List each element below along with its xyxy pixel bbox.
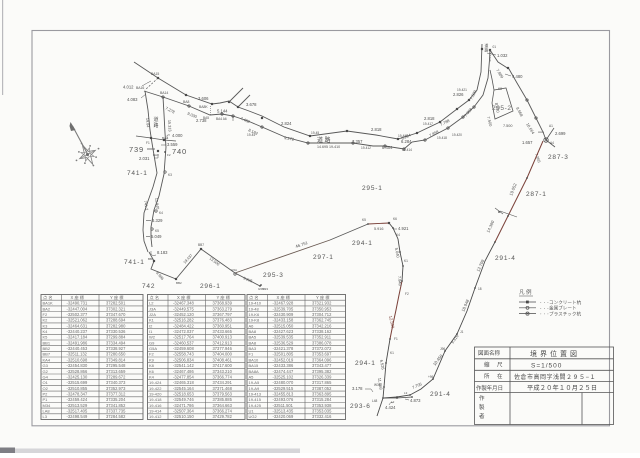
- svg-text:P2: P2: [43, 391, 49, 396]
- svg-text:路: 路: [154, 122, 159, 129]
- svg-text:L2: L2: [149, 301, 154, 306]
- svg-text:K6: K6: [149, 369, 155, 374]
- svg-text:-32467.348: -32467.348: [173, 301, 194, 306]
- svg-text:-32455.813: -32455.813: [273, 391, 294, 396]
- svg-text:37315.284: 37315.284: [312, 397, 332, 402]
- svg-text:K9: K9: [149, 357, 155, 362]
- svg-text:37434.291: 37434.291: [213, 380, 233, 385]
- svg-text:4.873: 4.873: [410, 398, 421, 403]
- svg-text:37371.468: 37371.468: [213, 386, 233, 391]
- svg-text:F2: F2: [405, 292, 409, 296]
- svg-text:37400.913: 37400.913: [213, 335, 233, 340]
- svg-text:37342.216: 37342.216: [312, 323, 332, 328]
- svg-text:製: 製: [479, 403, 485, 411]
- svg-text:4.424: 4.424: [385, 405, 396, 410]
- svg-text:-32425.130: -32425.130: [67, 374, 88, 379]
- svg-text:-32528.866: -32528.866: [67, 369, 88, 374]
- svg-text:37353.697: 37353.697: [312, 352, 332, 357]
- svg-text:19-45: 19-45: [311, 131, 319, 135]
- svg-text:-32467.486: -32467.486: [173, 369, 194, 374]
- svg-text:F1: F1: [146, 141, 150, 145]
- svg-text:-32427.623: -32427.623: [273, 329, 294, 334]
- svg-text:3.678: 3.678: [246, 102, 257, 107]
- svg-text:19-44: 19-44: [247, 133, 255, 137]
- svg-text:-32452.019: -32452.019: [273, 357, 294, 362]
- svg-text:19-413: 19-413: [249, 391, 262, 396]
- svg-text:297-1: 297-1: [313, 254, 334, 261]
- svg-text:-32420.069: -32420.069: [273, 414, 294, 419]
- svg-text:境界位置図: 境界位置図: [530, 349, 580, 358]
- svg-text:37338.927: 37338.927: [106, 346, 126, 351]
- svg-text:287-1: 287-1: [526, 191, 547, 198]
- svg-text:19-410: 19-410: [249, 301, 262, 306]
- svg-text:19-414: 19-414: [149, 409, 162, 414]
- svg-text:19-418: 19-418: [149, 397, 162, 402]
- svg-text:A5: A5: [249, 374, 255, 379]
- svg-text:BA16: BA16: [136, 86, 144, 90]
- svg-text:37353.938: 37353.938: [312, 403, 332, 408]
- svg-text:37335.204: 37335.204: [106, 397, 126, 402]
- svg-text:-32452.120: -32452.120: [173, 312, 194, 317]
- svg-text:37385.885: 37385.885: [213, 397, 233, 402]
- svg-text:37334.494: 37334.494: [106, 340, 126, 345]
- svg-text:-32460.537: -32460.537: [173, 340, 194, 345]
- svg-text:2.818: 2.818: [424, 116, 435, 121]
- svg-text:37363.895: 37363.895: [312, 391, 332, 396]
- svg-text:19-412: 19-412: [149, 414, 162, 419]
- svg-text:37349.814: 37349.814: [106, 357, 126, 362]
- svg-text:-32464.631: -32464.631: [67, 323, 88, 328]
- svg-text:3.178: 3.178: [352, 386, 363, 391]
- svg-text:L48: L48: [372, 399, 378, 403]
- svg-text:BB2: BB2: [43, 346, 51, 351]
- svg-text:37395.382: 37395.382: [312, 369, 332, 374]
- svg-text:-32545.164: -32545.164: [173, 386, 194, 391]
- svg-text:G5A: G5A: [231, 268, 237, 272]
- svg-text:平成２０年１０月２５日: 平成２０年１０月２５日: [527, 384, 597, 392]
- svg-text:BB1: BB1: [43, 340, 51, 345]
- svg-text:-32529.515: -32529.515: [273, 386, 294, 391]
- svg-text:-32417.184: -32417.184: [67, 335, 88, 340]
- svg-text:所 在: 所 在: [484, 372, 506, 380]
- svg-text:-32516.282: -32516.282: [173, 318, 194, 323]
- svg-text:-32539.705: -32539.705: [273, 306, 294, 311]
- svg-text:37379.563: 37379.563: [213, 391, 233, 396]
- svg-text:741-1: 741-1: [124, 259, 145, 266]
- svg-text:-32498.549: -32498.549: [67, 414, 88, 419]
- svg-text:37338.162: 37338.162: [312, 329, 332, 334]
- svg-text:K1: K1: [149, 318, 155, 323]
- svg-text:4.012: 4.012: [123, 85, 134, 90]
- svg-text:-32510.150: -32510.150: [173, 414, 194, 419]
- svg-text:BB1: BB1: [148, 257, 154, 261]
- svg-text:BB7: BB7: [198, 243, 204, 247]
- svg-text:37284.582: 37284.582: [106, 414, 126, 419]
- svg-text:F2: F2: [149, 352, 154, 357]
- svg-text:BB2: BB2: [176, 281, 182, 285]
- svg-text:-32465.318: -32465.318: [173, 380, 194, 385]
- svg-text:L2: L2: [391, 400, 395, 404]
- svg-text:-32484.422: -32484.422: [173, 323, 194, 328]
- svg-text:-32507.364: -32507.364: [173, 409, 194, 414]
- svg-text:K4: K4: [149, 374, 155, 379]
- svg-text:AAA: AAA: [538, 130, 544, 134]
- svg-text:37433.665: 37433.665: [213, 329, 233, 334]
- svg-text:37343.477: 37343.477: [312, 363, 332, 368]
- svg-text:-32449.575: -32449.575: [173, 306, 194, 311]
- svg-text:1.032: 1.032: [497, 53, 508, 58]
- svg-text:2.031: 2.031: [139, 156, 150, 161]
- svg-text:BA2: BA2: [43, 306, 51, 311]
- svg-text:37352.911: 37352.911: [312, 335, 332, 340]
- svg-text:-32513.529: -32513.529: [67, 403, 88, 408]
- svg-text:19-48: 19-48: [249, 306, 260, 311]
- svg-text:7.840: 7.840: [397, 276, 403, 287]
- svg-text:37295.548: 37295.548: [106, 363, 126, 368]
- svg-text:-32477.854: -32477.854: [173, 374, 194, 379]
- svg-text:7.500: 7.500: [503, 124, 513, 128]
- svg-text:5.049: 5.049: [151, 234, 162, 239]
- svg-text:+96: +96: [428, 375, 434, 379]
- svg-text:G5B: G5B: [258, 287, 264, 291]
- svg-text:F2: F2: [167, 153, 171, 157]
- svg-text:37299.884: 37299.884: [106, 335, 126, 340]
- svg-text:BA8A: BA8A: [249, 369, 260, 374]
- svg-text:19-424: 19-424: [149, 380, 162, 385]
- svg-text:K5: K5: [43, 335, 49, 340]
- svg-text:-32493.076: -32493.076: [273, 397, 294, 402]
- svg-text:K4: K4: [159, 211, 163, 215]
- svg-text:14.695 19-410: 14.695 19-410: [317, 145, 340, 149]
- svg-text:37288.694: 37288.694: [106, 318, 126, 323]
- svg-text:291-4: 291-4: [495, 255, 516, 262]
- svg-text:L3: L3: [43, 414, 48, 419]
- svg-text:-32515.699: -32515.699: [67, 380, 88, 385]
- svg-text:-32501.805: -32501.805: [273, 352, 294, 357]
- svg-text:19-416: 19-416: [149, 403, 162, 408]
- svg-text:BA14: BA14: [160, 91, 168, 95]
- svg-text:BA8: BA8: [183, 100, 190, 104]
- svg-text:BA5: BA5: [249, 335, 257, 340]
- svg-text:19-420: 19-420: [452, 133, 462, 137]
- svg-text:-32440.237: -32440.237: [67, 329, 88, 334]
- svg-text:18: 18: [478, 287, 482, 291]
- svg-text:19-K8: 19-K8: [249, 318, 260, 323]
- svg-text:図面名称: 図面名称: [478, 349, 501, 357]
- svg-text:37368.939: 37368.939: [213, 301, 233, 306]
- svg-text:8.404: 8.404: [382, 145, 393, 150]
- svg-text:37360.951: 37360.951: [213, 323, 233, 328]
- svg-text:19-A9: 19-A9: [249, 386, 260, 391]
- svg-text:19-425: 19-425: [249, 403, 262, 408]
- svg-text:-32536.529: -32536.529: [273, 340, 294, 345]
- svg-text:7.357: 7.357: [352, 139, 363, 144]
- svg-text:-32472.037: -32472.037: [173, 329, 194, 334]
- svg-text:37366.274: 37366.274: [213, 409, 233, 414]
- svg-text:作製年月日: 作製年月日: [476, 384, 503, 392]
- svg-text:37366.774: 37366.774: [213, 374, 233, 379]
- svg-text:BA3: BA3: [249, 346, 257, 351]
- svg-text:37372.072: 37372.072: [312, 346, 332, 351]
- svg-text:19-414: 19-414: [402, 148, 412, 152]
- svg-text:凡 例: 凡 例: [519, 288, 532, 296]
- svg-text:作: 作: [479, 394, 485, 402]
- svg-text:-32440.453: -32440.453: [67, 346, 88, 351]
- svg-text:KA4: KA4: [43, 357, 51, 362]
- svg-text:BA8: BA8: [249, 340, 257, 345]
- svg-text:P1: P1: [43, 397, 49, 402]
- svg-text:K5: K5: [155, 229, 159, 233]
- svg-text:-32517.764: -32517.764: [173, 335, 194, 340]
- svg-text:1.657: 1.657: [522, 140, 533, 145]
- svg-text:37429.782: 37429.782: [213, 414, 233, 419]
- svg-text:37377.946: 37377.946: [213, 346, 233, 351]
- svg-text:BA8K: BA8K: [199, 105, 208, 109]
- svg-text:道路: 道路: [317, 136, 332, 144]
- svg-text:J2A: J2A: [149, 312, 156, 317]
- svg-text:37417.600: 37417.600: [213, 363, 233, 368]
- svg-text:-32454.830: -32454.830: [67, 363, 88, 368]
- svg-text:37412.913: 37412.913: [213, 340, 233, 345]
- svg-text:19-415: 19-415: [249, 397, 262, 402]
- svg-text:-32506.834: -32506.834: [173, 357, 194, 362]
- svg-text:W36: W36: [374, 383, 381, 387]
- svg-text:-32490.731: -32490.731: [67, 301, 88, 306]
- svg-text:-32433.386: -32433.386: [273, 363, 294, 368]
- svg-text:BA8: BA8: [249, 329, 257, 334]
- svg-text:4.083: 4.083: [127, 97, 138, 102]
- svg-text:19-417: 19-417: [423, 122, 433, 126]
- svg-text:37364.663: 37364.663: [213, 403, 233, 408]
- svg-text:-32430.909: -32430.909: [273, 312, 294, 317]
- svg-text:F2: F2: [43, 312, 48, 317]
- svg-text:-32459.424: -32459.424: [67, 397, 88, 402]
- svg-text:37362.745: 37362.745: [312, 318, 332, 323]
- svg-text:8.183: 8.183: [157, 250, 168, 255]
- svg-text:295-1: 295-1: [362, 185, 383, 192]
- svg-text:295-2: 295-2: [492, 105, 512, 112]
- svg-text:M34: M34: [43, 403, 52, 408]
- svg-text:37408.461: 37408.461: [213, 357, 233, 362]
- svg-text:37282.980: 37282.980: [106, 323, 126, 328]
- svg-text:37386.078: 37386.078: [312, 340, 332, 345]
- svg-text:-32433.158: -32433.158: [273, 318, 294, 323]
- svg-text:37313.659: 37313.659: [106, 369, 126, 374]
- svg-text:15.313: 15.313: [167, 120, 172, 132]
- svg-text:-32480.070: -32480.070: [273, 380, 294, 385]
- svg-text:2.818: 2.818: [371, 127, 382, 132]
- svg-text:-32511.132: -32511.132: [67, 352, 88, 357]
- svg-text:-32517.405: -32517.405: [67, 409, 88, 414]
- svg-text:BA1K: BA1K: [43, 301, 54, 306]
- svg-text:K4: K4: [43, 329, 49, 334]
- svg-text:K2: K2: [43, 318, 49, 323]
- svg-text:19-421: 19-421: [457, 88, 467, 92]
- svg-text:BA2: BA2: [162, 136, 168, 140]
- svg-text:-32515.050: -32515.050: [273, 323, 294, 328]
- svg-text:-32539.535: -32539.535: [273, 335, 294, 340]
- svg-text:37330.536: 37330.536: [106, 329, 126, 334]
- svg-text:-32513.435: -32513.435: [273, 409, 294, 414]
- svg-text:BA4 A6: BA4 A6: [216, 117, 227, 121]
- svg-text:A6: A6: [249, 323, 255, 328]
- svg-text:-32491.986: -32491.986: [67, 340, 88, 345]
- svg-text:-32518.653: -32518.653: [173, 391, 194, 396]
- svg-text:37341.852: 37341.852: [106, 403, 126, 408]
- svg-text:J3A: J3A: [149, 306, 156, 311]
- svg-text:S=1/500: S=1/500: [531, 363, 562, 370]
- svg-text:37280.650: 37280.650: [106, 352, 126, 357]
- svg-text:道: 道: [154, 116, 159, 123]
- svg-text:A4: A4: [550, 141, 554, 145]
- svg-text:37350.953: 37350.953: [312, 306, 332, 311]
- svg-text:K3: K3: [168, 173, 172, 177]
- svg-text:01: 01: [493, 45, 497, 49]
- svg-text:37321.932: 37321.932: [312, 301, 332, 306]
- svg-text:37363.279: 37363.279: [213, 306, 233, 311]
- svg-text:K1: K1: [404, 259, 408, 263]
- svg-text:路: 路: [485, 48, 489, 53]
- svg-text:19-422: 19-422: [149, 386, 162, 391]
- svg-text:37282.501: 37282.501: [106, 301, 126, 306]
- svg-text:19-412: 19-412: [361, 146, 371, 150]
- svg-text:37376.483: 37376.483: [213, 318, 233, 323]
- svg-text:37353.035: 37353.035: [312, 409, 332, 414]
- svg-text:37352.973: 37352.973: [106, 386, 126, 391]
- svg-text:37337.735: 37337.735: [106, 409, 126, 414]
- svg-text:G9: G9: [149, 340, 155, 345]
- svg-text:J1: J1: [460, 330, 464, 334]
- svg-text:BA5: BA5: [203, 116, 209, 120]
- svg-text:295-3: 295-3: [263, 272, 284, 279]
- svg-text:L3: L3: [404, 391, 408, 395]
- svg-text:K4: K4: [396, 233, 400, 237]
- svg-text:742: 742: [142, 283, 155, 290]
- svg-text:37332.416: 37332.416: [312, 414, 332, 419]
- svg-text:4.480: 4.480: [512, 74, 523, 79]
- svg-text:37340.373: 37340.373: [106, 380, 126, 385]
- svg-text:K5: K5: [362, 218, 366, 222]
- svg-text:37317.865: 37317.865: [312, 380, 332, 385]
- svg-text:-32474.447: -32474.447: [273, 369, 294, 374]
- svg-text:5.144: 5.144: [217, 109, 228, 114]
- svg-text:K6: K6: [393, 217, 397, 221]
- svg-text:LA8: LA8: [43, 409, 51, 414]
- svg-text:-32467.928: -32467.928: [273, 301, 294, 306]
- svg-text:5.916: 5.916: [374, 227, 384, 231]
- svg-text:3.606: 3.606: [198, 96, 209, 101]
- svg-text:739: 739: [129, 145, 144, 154]
- svg-text:6.329: 6.329: [152, 218, 163, 223]
- svg-text:291-4: 291-4: [430, 391, 451, 398]
- svg-text:4.921: 4.921: [398, 226, 409, 231]
- svg-text:UG2: UG2: [249, 414, 258, 419]
- svg-text:37364.096: 37364.096: [312, 357, 332, 362]
- svg-text:K8: K8: [498, 87, 502, 91]
- svg-text:19.84: 19.84: [145, 118, 150, 128]
- svg-text:2.826: 2.826: [453, 92, 464, 97]
- svg-text:-32558.743: -32558.743: [173, 352, 194, 357]
- svg-text:K8: K8: [149, 363, 155, 368]
- svg-text:J96: J96: [440, 347, 445, 351]
- svg-text:-32447.004: -32447.004: [67, 306, 88, 311]
- svg-text:A1: A1: [549, 124, 553, 128]
- svg-text:者: 者: [479, 412, 485, 420]
- svg-text:37326.339: 37326.339: [312, 374, 332, 379]
- svg-text:G2: G2: [43, 369, 49, 374]
- svg-text:-32510.855: -32510.855: [67, 386, 88, 391]
- svg-text:294-1: 294-1: [352, 240, 373, 247]
- svg-text:BB7: BB7: [43, 352, 51, 357]
- svg-text:U1: U1: [249, 409, 255, 414]
- svg-text:741-1: 741-1: [127, 170, 148, 177]
- svg-text:37289.672: 37289.672: [106, 374, 126, 379]
- svg-text:-32478.347: -32478.347: [67, 391, 88, 396]
- svg-text:37304.712: 37304.712: [312, 312, 332, 317]
- svg-text:プラスチック杭: プラスチック杭: [549, 310, 581, 317]
- svg-text:O1: O1: [43, 380, 49, 385]
- svg-text:BA15: BA15: [249, 363, 260, 368]
- svg-text:道: 道: [485, 43, 489, 48]
- svg-text:佐倉市高岡字浅間２９５−１: 佐倉市高岡字浅間２９５−１: [514, 373, 596, 381]
- svg-text:F1: F1: [249, 352, 254, 357]
- svg-text:4.000: 4.000: [172, 133, 183, 138]
- svg-text:-32421.378: -32421.378: [273, 346, 294, 351]
- svg-text:-32502.377: -32502.377: [67, 312, 88, 317]
- svg-text:O2: O2: [43, 386, 49, 391]
- svg-text:37387.052: 37387.052: [312, 386, 332, 391]
- svg-text:W2: W2: [149, 335, 156, 340]
- svg-text:G4: G4: [43, 374, 49, 379]
- svg-text:K3: K3: [43, 323, 49, 328]
- svg-text:740: 740: [172, 147, 187, 156]
- svg-text:19-A5: 19-A5: [249, 380, 260, 385]
- svg-text:287-3: 287-3: [548, 154, 569, 161]
- svg-text:G5A: G5A: [149, 346, 157, 351]
- svg-text:37302.321: 37302.321: [106, 306, 126, 311]
- svg-text:F1: F1: [394, 337, 398, 341]
- svg-text:37343.210: 37343.210: [213, 369, 233, 374]
- svg-text:-32511.501: -32511.501: [273, 403, 294, 408]
- svg-text:2.699: 2.699: [555, 131, 566, 136]
- svg-text:BA15: BA15: [151, 72, 159, 76]
- svg-text:-32510.698: -32510.698: [67, 357, 88, 362]
- svg-text:37377.312: 37377.312: [106, 391, 126, 396]
- svg-text:19-K6: 19-K6: [249, 312, 260, 317]
- svg-text:37367.797: 37367.797: [213, 312, 233, 317]
- svg-text:-32459.608: -32459.608: [173, 346, 194, 351]
- svg-text:-32471.786: -32471.786: [173, 403, 194, 408]
- svg-text:19-418: 19-418: [437, 136, 447, 140]
- svg-text:K1: K1: [390, 351, 394, 355]
- svg-text:BA10: BA10: [249, 357, 260, 362]
- svg-text:2.824: 2.824: [281, 121, 292, 126]
- svg-text:37404.000: 37404.000: [213, 352, 233, 357]
- svg-text:293-6: 293-6: [350, 403, 371, 410]
- svg-text:-32541.142: -32541.142: [173, 363, 194, 368]
- svg-text:-32549.746: -32549.746: [173, 397, 194, 402]
- svg-text:-32521.062: -32521.062: [67, 318, 88, 323]
- svg-text:296-1: 296-1: [200, 283, 221, 290]
- svg-text:縮 尺: 縮 尺: [484, 361, 506, 369]
- svg-text:G3: G3: [43, 363, 49, 368]
- svg-text:37347.670: 37347.670: [106, 312, 126, 317]
- svg-text:19-420: 19-420: [149, 391, 162, 396]
- svg-text:-32525.102: -32525.102: [273, 374, 294, 379]
- svg-text:294-1: 294-1: [355, 360, 376, 367]
